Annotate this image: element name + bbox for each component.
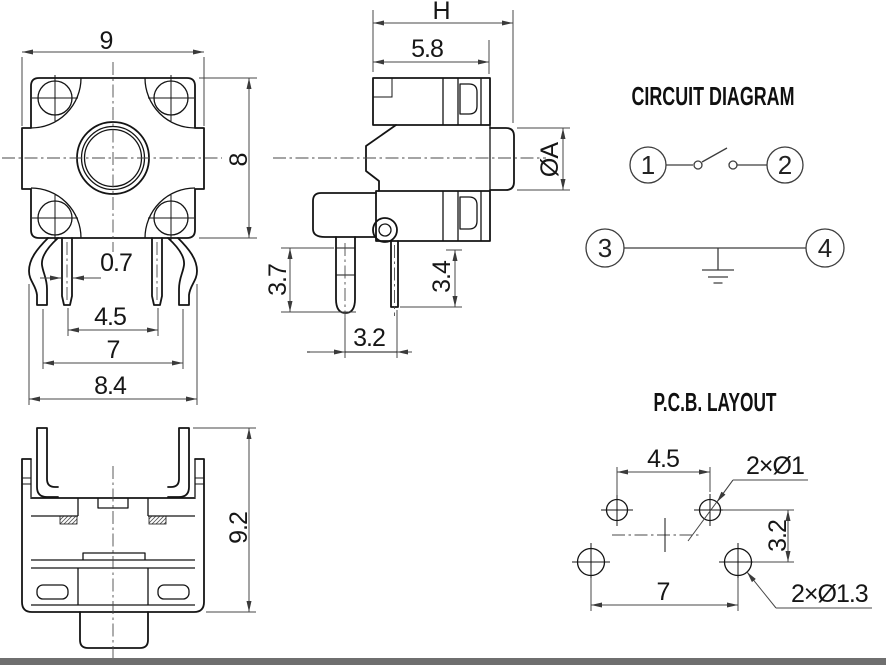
terminal-label-2: 2 bbox=[778, 150, 792, 180]
pcb-layout-title: P.C.B. LAYOUT bbox=[654, 387, 777, 417]
large-hole-note: 2×Ø1.3 bbox=[791, 580, 868, 608]
contact-hatch-right bbox=[149, 516, 166, 524]
dim-body-depth: 5.8 bbox=[373, 35, 489, 74]
front-slot-left bbox=[37, 585, 68, 599]
upper-housing-details bbox=[443, 78, 481, 125]
switch-symbol bbox=[666, 148, 767, 169]
dim-label-height: 8 bbox=[225, 153, 253, 166]
dim-label-stem-diameter: ØA bbox=[536, 142, 564, 177]
dim-label-peg-length: 3.7 bbox=[264, 264, 292, 296]
dim-terminal-length: 3.4 bbox=[400, 250, 462, 307]
side-view: H 5.8 ØA 3.7 3.4 3.2 bbox=[264, 0, 570, 358]
dim-label-terminal-length: 3.4 bbox=[428, 260, 456, 293]
side-center-lines bbox=[273, 158, 546, 320]
dim-label-row-pitch: 3.2 bbox=[764, 520, 792, 552]
front-mid-tab bbox=[83, 553, 145, 560]
drawing-sheet: 9 8 0.7 4.5 7 8.4 bbox=[0, 0, 886, 669]
dim-top-hole-pitch: 4.5 bbox=[617, 445, 710, 495]
lower-housing bbox=[376, 191, 490, 241]
pcb-layout: P.C.B. LAYOUT 4.5 2×Ø1 3.2 bbox=[572, 387, 872, 611]
dim-peg-to-terminal: 3.2 bbox=[307, 310, 412, 358]
dim-label-top-hole-pitch: 4.5 bbox=[647, 445, 679, 473]
dim-label-pin-width: 0.7 bbox=[100, 249, 132, 277]
dim-stem-diameter: ØA bbox=[517, 128, 570, 190]
small-hole-note: 2×Ø1 bbox=[746, 452, 804, 480]
dim-peg-length: 3.7 bbox=[264, 248, 356, 312]
terminal-label-3: 3 bbox=[598, 233, 612, 263]
center-lines bbox=[2, 62, 222, 252]
circuit-diagram-title: CIRCUIT DIAGRAM bbox=[632, 81, 795, 111]
front-view: 9.2 bbox=[22, 428, 256, 659]
circuit-diagram: CIRCUIT DIAGRAM 1 2 3 4 bbox=[586, 81, 844, 283]
dim-label-width: 9 bbox=[100, 27, 113, 55]
dim-label-overall-height: 9.2 bbox=[225, 512, 253, 544]
contact-hatch-left bbox=[60, 516, 77, 524]
upper-housing-notch bbox=[373, 78, 392, 97]
dim-label-pin-span: 8.4 bbox=[94, 372, 127, 400]
pcb-small-holes bbox=[601, 494, 726, 526]
locating-peg-lines bbox=[336, 248, 355, 275]
pcb-center-mark bbox=[612, 518, 702, 552]
large-hole-callout: 2×Ø1.3 bbox=[747, 572, 872, 608]
dim-label-outer-pin-pitch: 7 bbox=[107, 336, 120, 364]
dim-row-pitch: 3.2 bbox=[723, 510, 794, 562]
front-button bbox=[80, 612, 148, 648]
dim-label-total-height: H bbox=[432, 0, 449, 25]
push-button bbox=[490, 128, 514, 190]
dim-overall-height: 9.2 bbox=[193, 428, 256, 612]
dim-pin-width: 0.7 bbox=[40, 249, 132, 278]
front-snap-prongs bbox=[37, 428, 189, 497]
dim-label-inner-pin-pitch: 4.5 bbox=[94, 303, 126, 331]
top-view: 9 8 0.7 4.5 7 8.4 bbox=[2, 27, 257, 405]
footer-bar bbox=[0, 658, 886, 665]
dim-label-body-depth: 5.8 bbox=[411, 35, 443, 63]
pivot-circle-inner bbox=[379, 224, 391, 236]
dim-label-bottom-hole-pitch: 7 bbox=[657, 578, 670, 606]
tact-switch-drawing: 9 8 0.7 4.5 7 8.4 bbox=[0, 0, 886, 669]
dim-inner-pin-pitch: 4.5 bbox=[68, 303, 158, 336]
front-slot-right bbox=[158, 585, 189, 599]
terminal-label-4: 4 bbox=[818, 233, 832, 263]
lower-housing-details bbox=[443, 191, 481, 241]
dim-label-peg-to-terminal: 3.2 bbox=[353, 324, 385, 352]
ground-symbol bbox=[702, 248, 734, 283]
dim-bottom-hole-pitch: 7 bbox=[591, 578, 738, 611]
terminal-label-1: 1 bbox=[641, 150, 655, 180]
mounting-bracket bbox=[313, 193, 376, 237]
